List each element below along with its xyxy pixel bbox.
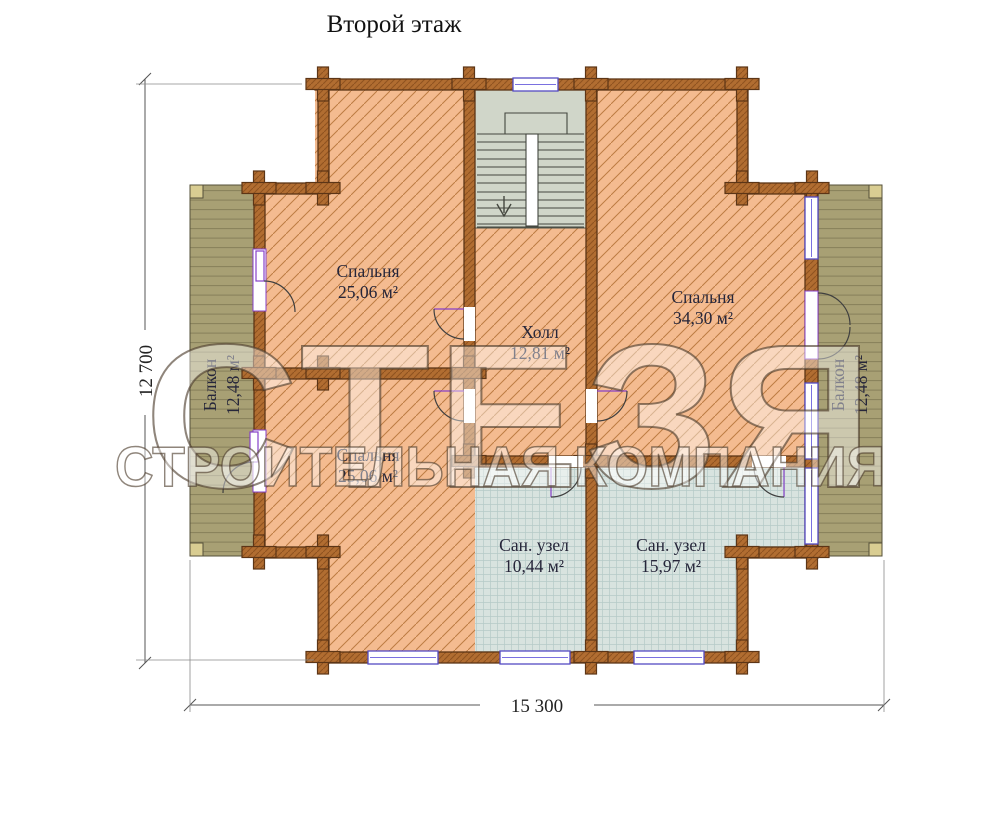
svg-text:Спальня: Спальня: [336, 261, 399, 281]
page-title: Второй этаж: [327, 11, 462, 38]
svg-text:25,06 м²: 25,06 м²: [338, 282, 398, 302]
watermark-tagline: СТРОИТЕЛЬНАЯ КОМПАНИЯ: [115, 435, 885, 499]
label-bedroom-top-left: Спальня 25,06 м²: [336, 261, 399, 302]
dim-width-label: 15 300: [511, 696, 563, 717]
label-bath-right: Сан. узел 15,97 м²: [636, 535, 706, 576]
floorplan-drawing: Второй этаж: [0, 0, 1000, 828]
svg-text:Сан. узел: Сан. узел: [636, 535, 706, 555]
svg-text:Сан. узел: Сан. узел: [499, 535, 569, 555]
stair-stringer: [526, 134, 538, 226]
window-bottom-2: [500, 651, 570, 664]
window-stair-top: [513, 78, 558, 91]
svg-text:15,97 м²: 15,97 м²: [641, 556, 701, 576]
svg-text:10,44 м²: 10,44 м²: [504, 556, 564, 576]
window-right-1: [805, 197, 818, 259]
window-bottom-3: [634, 651, 704, 664]
window-bottom-1: [368, 651, 438, 664]
floorplan-page: Второй этаж: [0, 0, 1000, 828]
label-bath-left: Сан. узел 10,44 м²: [499, 535, 569, 576]
watermark: СТЕЗЯ СТРОИТЕЛЬНАЯ КОМПАНИЯ: [115, 302, 885, 531]
